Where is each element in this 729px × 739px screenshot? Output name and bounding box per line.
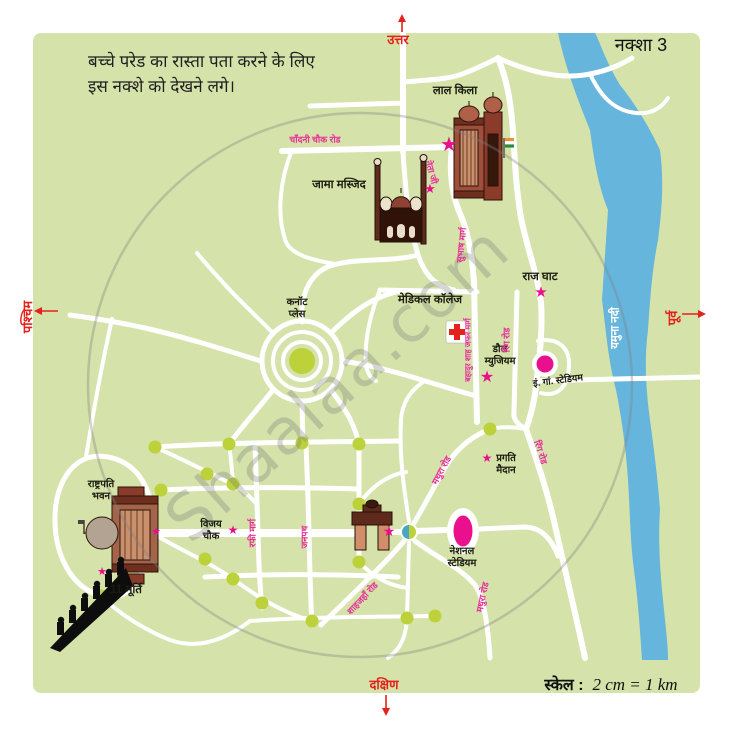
svg-text:★: ★ <box>151 525 161 538</box>
label-chandni-chowk-road: चाँदनी चौक रोड <box>290 133 341 146</box>
svg-text:★: ★ <box>383 524 396 540</box>
direction-north: उत्तर <box>387 30 408 48</box>
label-pragati-maidan: प्रगति मैदान <box>496 453 516 477</box>
label-national-stadium: नेशनल स्टेडियम <box>448 546 477 570</box>
label-bahadur-shah-zafar-marg: बहादुर शाह जफर मार्ग <box>463 318 474 382</box>
india-gate-roundabout <box>400 523 418 541</box>
label-rashtrapati-bhavan: राष्ट्रपति भवन <box>88 479 115 503</box>
map-page: ★ ★ ★ ★ ★ ★ ★ ★ ★ Shaalaa.com बच्चे परेड… <box>0 0 729 739</box>
intro-line1: बच्चे परेड का रास्ता पता करने के लिए <box>88 50 315 75</box>
label-11-murti: 11 मूर्ति <box>110 584 142 598</box>
label-national-line2: स्टेडियम <box>448 558 477 570</box>
label-pragati-line1: प्रगति <box>496 453 516 465</box>
label-rafi-marg: रफी मार्ग <box>246 519 259 547</box>
intro-line2: इस नक्शे को देखने लगे। <box>88 75 315 100</box>
label-raj-ghat: राज घाट <box>523 271 558 285</box>
label-rashtrapati-line1: राष्ट्रपति <box>88 479 115 491</box>
svg-text:★: ★ <box>480 367 494 386</box>
svg-text:★: ★ <box>534 283 547 301</box>
svg-text:★: ★ <box>482 451 493 465</box>
label-vijay-line2: चौक <box>200 531 221 543</box>
scale-value: 2 cm = 1 km <box>592 675 677 694</box>
scale-separator: : <box>578 677 583 694</box>
label-ring-road-north: रिंग रोड <box>500 328 513 352</box>
label-janpath: जनपथ <box>298 526 311 549</box>
map-graphic: ★ ★ ★ ★ ★ ★ ★ ★ ★ Shaalaa.com <box>0 0 729 739</box>
label-lal-qila: लाल किला <box>433 85 477 99</box>
direction-south: दक्षिण <box>370 675 399 693</box>
label-national-line1: नेशनल <box>448 546 477 558</box>
label-connaught-line1: कनॉट <box>287 297 308 309</box>
ig-stadium-marker <box>532 351 558 377</box>
label-jama-masjid: जामा मस्जिद <box>312 179 366 193</box>
map-title: नक्शा 3 <box>615 33 667 57</box>
svg-text:★: ★ <box>440 132 458 156</box>
label-connaught-place: कनॉट प्लेस <box>287 297 308 321</box>
label-vijay-chowk: विजय चौक <box>200 519 221 543</box>
direction-east: पूर्व <box>663 311 681 326</box>
label-connaught-line2: प्लेस <box>287 309 308 321</box>
svg-text:★: ★ <box>97 565 107 578</box>
label-pragati-line2: मैदान <box>496 465 516 477</box>
label-vijay-line1: विजय <box>200 519 221 531</box>
label-medical-college: मेडिकल कॉलेज <box>398 294 462 308</box>
label-rashtrapati-line2: भवन <box>88 491 115 503</box>
direction-west: पश्चिम <box>18 301 36 333</box>
map-scale: स्केल : 2 cm = 1 km <box>544 673 677 695</box>
intro-text: बच्चे परेड का रास्ता पता करने के लिए इस … <box>88 50 315 99</box>
label-yamuna-river: यमुना नदी <box>608 307 623 349</box>
label-doll-line2: म्युजियम <box>485 356 516 368</box>
scale-label: स्केल <box>544 677 573 694</box>
